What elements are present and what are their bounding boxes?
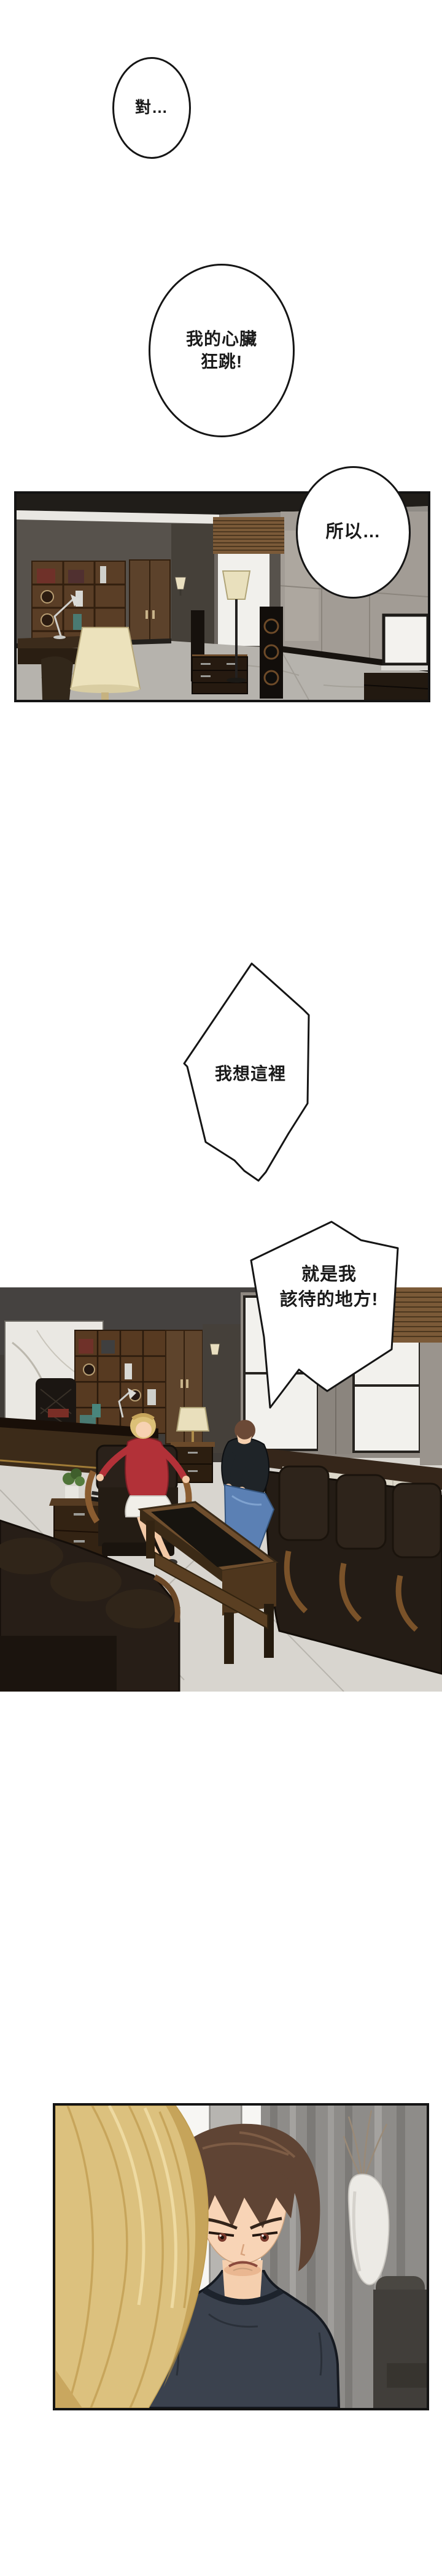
speech-bubble-2-line1: 我的心臟 [186, 328, 257, 350]
sofa-cushion [50, 1562, 122, 1601]
right-cabinet [364, 673, 428, 700]
desk-books [48, 1409, 69, 1417]
plate [41, 614, 53, 626]
sofa-cushion [106, 1589, 174, 1628]
speech-bubble-1-text: 對… [135, 98, 168, 118]
closeup-illustration [55, 2106, 427, 2408]
plate [41, 591, 53, 603]
table-leg [224, 1612, 234, 1664]
right-window [381, 615, 428, 670]
hand [182, 1476, 190, 1483]
books [68, 570, 84, 583]
tower-speaker [260, 607, 283, 699]
thought-bubble-5-text: 就是我 該待的地方! [262, 1262, 397, 1313]
table-leg [264, 1604, 274, 1658]
vase [73, 614, 82, 630]
media-cabinet [192, 654, 247, 694]
books [37, 569, 55, 583]
plant-pot [65, 1486, 79, 1498]
thought-bubble-5-line2: 該待的地方! [262, 1287, 397, 1313]
wall-sconce [210, 1344, 220, 1355]
chair-right [373, 2276, 427, 2408]
sofa-back-cushion [279, 1466, 328, 1540]
thought-bubble-5: 就是我 該待的地方! [246, 1217, 405, 1417]
table-lamp-foreground [70, 627, 140, 700]
thought-bubble-5-shape [246, 1217, 405, 1417]
speech-bubble-2-text: 我的心臟 狂跳! [186, 328, 257, 373]
sofa-back-cushion [393, 1484, 441, 1557]
thought-bubble-4: 我想這裡 [181, 960, 313, 1187]
table-leg [146, 1520, 155, 1558]
speech-bubble-3: 所以… [296, 466, 411, 599]
dark-wall-strip [203, 1324, 241, 1453]
table-lamp-shade [177, 1408, 209, 1431]
speech-bubble-2: 我的心臟 狂跳! [149, 264, 295, 437]
comic-page: 對… 我的心臟 狂跳! [0, 0, 442, 2576]
speech-bubble-3-text: 所以… [325, 521, 381, 544]
sofa-back-cushion [336, 1475, 386, 1549]
thought-bubble-4-text: 我想這裡 [201, 1063, 300, 1085]
office-chair [41, 656, 73, 700]
desk-vase [92, 1404, 101, 1417]
speech-bubble-2-line2: 狂跳! [186, 351, 257, 373]
speech-bubble-1: 對… [112, 57, 191, 159]
face [136, 1422, 152, 1438]
hand [96, 1474, 104, 1481]
panel-closeup-scene [53, 2103, 429, 2410]
vase [100, 566, 106, 583]
window-frame-strip [214, 554, 218, 646]
window-blinds [213, 517, 284, 554]
thought-bubble-5-line1: 就是我 [262, 1262, 397, 1287]
